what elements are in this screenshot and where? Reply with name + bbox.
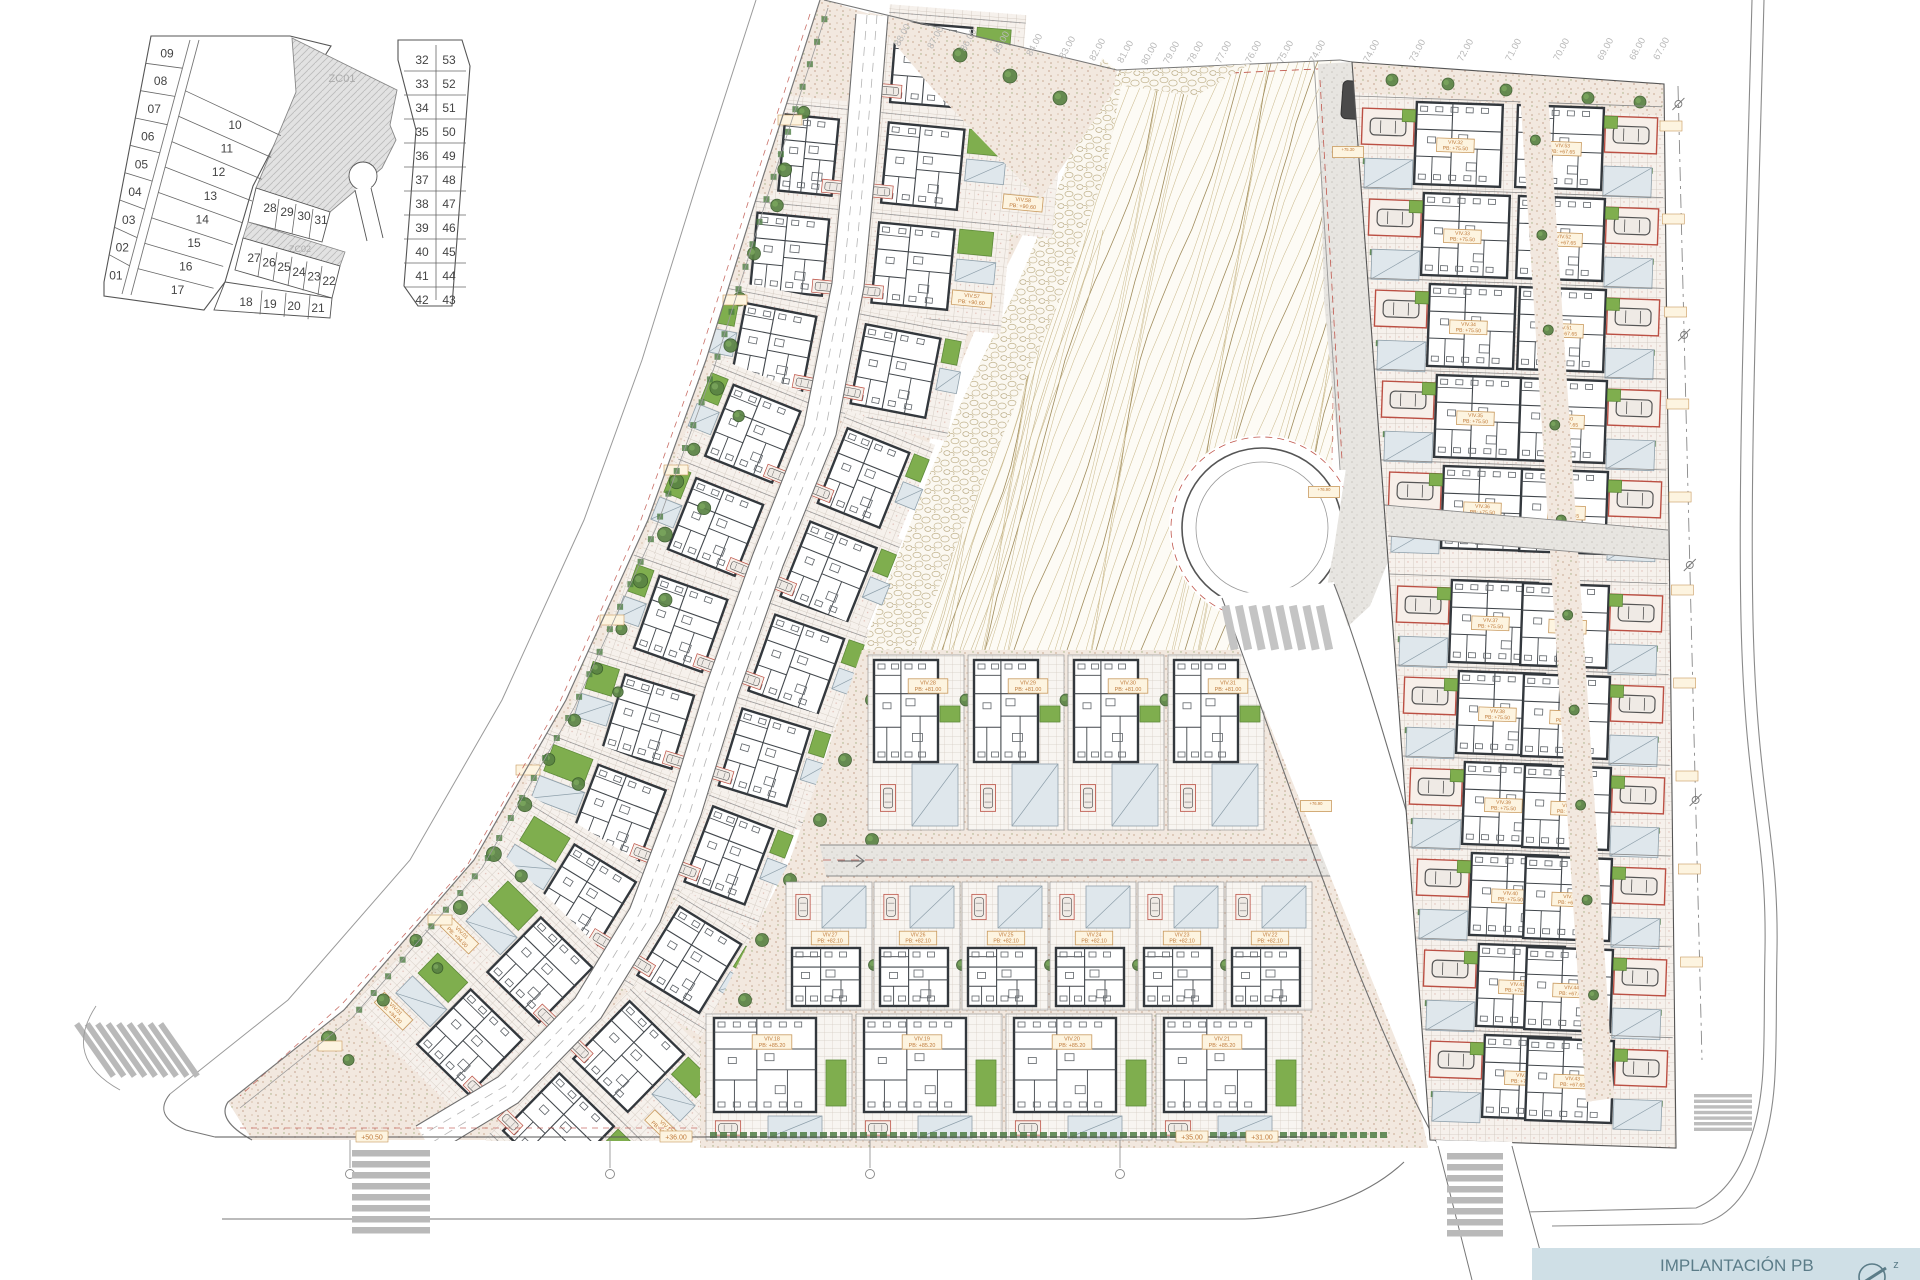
svg-text:07: 07 [148, 102, 162, 116]
svg-text:+76.90: +76.90 [1318, 487, 1332, 492]
svg-text:03: 03 [122, 213, 136, 227]
svg-text:17: 17 [171, 283, 185, 297]
svg-text:06: 06 [141, 130, 155, 144]
svg-text:24: 24 [292, 265, 306, 279]
svg-text:PB: +82.10: PB: +82.10 [817, 939, 843, 945]
svg-text:PB: +81.00: PB: +81.00 [1215, 687, 1242, 693]
svg-text:19: 19 [263, 297, 277, 311]
svg-text:15: 15 [187, 236, 201, 250]
svg-text:39: 39 [415, 221, 429, 235]
svg-text:11: 11 [221, 142, 234, 156]
svg-text:29: 29 [280, 205, 294, 219]
svg-text:PB: +82.10: PB: +82.10 [1081, 939, 1107, 945]
svg-text:PB: +75.50: PB: +75.50 [1456, 327, 1482, 334]
svg-text:41: 41 [415, 269, 429, 283]
svg-text:47: 47 [442, 197, 456, 211]
svg-text:31: 31 [314, 213, 328, 227]
svg-text:+75.30: +75.30 [1342, 147, 1356, 152]
svg-text:VIV.20: VIV.20 [1064, 1037, 1080, 1043]
svg-text:53: 53 [442, 53, 456, 67]
svg-text:34: 34 [415, 101, 429, 115]
svg-text:44: 44 [442, 269, 456, 283]
svg-text:PB: +85.20: PB: +85.20 [1059, 1043, 1086, 1049]
svg-text:IMPLANTACIÓN PB: IMPLANTACIÓN PB [1660, 1256, 1814, 1275]
svg-text:26: 26 [262, 256, 276, 270]
svg-text:12: 12 [212, 165, 226, 179]
svg-text:50: 50 [442, 125, 456, 139]
svg-text:09: 09 [160, 46, 174, 60]
svg-text:36: 36 [415, 149, 429, 163]
svg-text:PB: +75.50: PB: +75.50 [1443, 145, 1469, 152]
svg-text:21: 21 [311, 301, 325, 315]
svg-text:52: 52 [442, 77, 456, 91]
svg-text:10: 10 [228, 118, 242, 132]
svg-text:PB: +75.50: PB: +75.50 [1450, 236, 1476, 243]
svg-text:25: 25 [277, 260, 291, 274]
svg-text:+76.90: +76.90 [1310, 801, 1324, 806]
svg-text:40: 40 [415, 245, 429, 259]
svg-text:02: 02 [116, 241, 130, 255]
svg-text:ZC01: ZC01 [329, 73, 356, 85]
svg-text:VIV.21: VIV.21 [1214, 1037, 1230, 1043]
svg-text:42: 42 [415, 293, 429, 307]
svg-text:PB: +82.10: PB: +82.10 [905, 939, 931, 945]
svg-text:PB: +85.20: PB: +85.20 [909, 1043, 936, 1049]
svg-text:PB: +82.10: PB: +82.10 [1169, 939, 1195, 945]
svg-text:PB: +81.00: PB: +81.00 [1015, 687, 1042, 693]
svg-text:PB: +82.10: PB: +82.10 [993, 939, 1019, 945]
svg-text:VIV.31: VIV.31 [1220, 681, 1236, 687]
svg-text:PB: +75.50: PB: +75.50 [1498, 896, 1524, 903]
svg-text:51: 51 [442, 101, 456, 115]
svg-text:+36.00: +36.00 [665, 1135, 687, 1142]
svg-text:20: 20 [287, 299, 301, 313]
svg-text:30: 30 [297, 209, 311, 223]
svg-text:16: 16 [179, 260, 193, 274]
svg-text:32: 32 [415, 53, 429, 67]
svg-text:PB: +75.50: PB: +75.50 [1463, 418, 1489, 425]
svg-text:28: 28 [263, 201, 277, 215]
svg-text:PB: +82.10: PB: +82.10 [1257, 939, 1283, 945]
svg-text:01: 01 [109, 269, 123, 283]
svg-text:37: 37 [415, 173, 429, 187]
svg-text:38: 38 [415, 197, 429, 211]
svg-text:PB: +85.20: PB: +85.20 [759, 1043, 786, 1049]
svg-text:33: 33 [415, 77, 429, 91]
svg-text:27: 27 [247, 251, 261, 265]
svg-text:05: 05 [135, 157, 149, 171]
svg-text:VIV.28: VIV.28 [920, 681, 936, 687]
svg-text:PB: +85.20: PB: +85.20 [1209, 1043, 1236, 1049]
svg-text:z: z [1893, 1259, 1899, 1271]
svg-text:35: 35 [415, 125, 429, 139]
svg-text:VIV.19: VIV.19 [914, 1037, 930, 1043]
svg-text:49: 49 [442, 149, 456, 163]
svg-text:48: 48 [442, 173, 456, 187]
svg-text:18: 18 [239, 295, 253, 309]
svg-text:VIV.18: VIV.18 [764, 1037, 780, 1043]
svg-text:VIV.30: VIV.30 [1120, 681, 1136, 687]
svg-text:14: 14 [196, 212, 210, 226]
svg-text:45: 45 [442, 245, 456, 259]
svg-text:+50.50: +50.50 [361, 1135, 383, 1142]
svg-text:PB: +67.65: PB: +67.65 [1560, 1082, 1586, 1089]
svg-text:PB: +75.50: PB: +75.50 [1491, 805, 1517, 812]
svg-text:PB: +75.50: PB: +75.50 [1478, 623, 1504, 630]
svg-text:46: 46 [442, 221, 456, 235]
svg-text:+31.00: +31.00 [1251, 1135, 1273, 1142]
svg-text:08: 08 [154, 74, 168, 88]
svg-text:43: 43 [442, 293, 456, 307]
svg-text:PB: +67.65: PB: +67.65 [1550, 149, 1576, 156]
svg-text:22: 22 [322, 274, 336, 288]
svg-text:PB: +81.00: PB: +81.00 [915, 687, 942, 693]
svg-text:VIV.29: VIV.29 [1020, 681, 1036, 687]
svg-text:13: 13 [204, 189, 218, 203]
svg-text:PB: +81.00: PB: +81.00 [1115, 687, 1142, 693]
svg-text:+35.00: +35.00 [1181, 1135, 1203, 1142]
svg-text:04: 04 [128, 185, 142, 199]
svg-text:23: 23 [307, 269, 321, 283]
svg-text:PB: +75.50: PB: +75.50 [1485, 714, 1511, 721]
